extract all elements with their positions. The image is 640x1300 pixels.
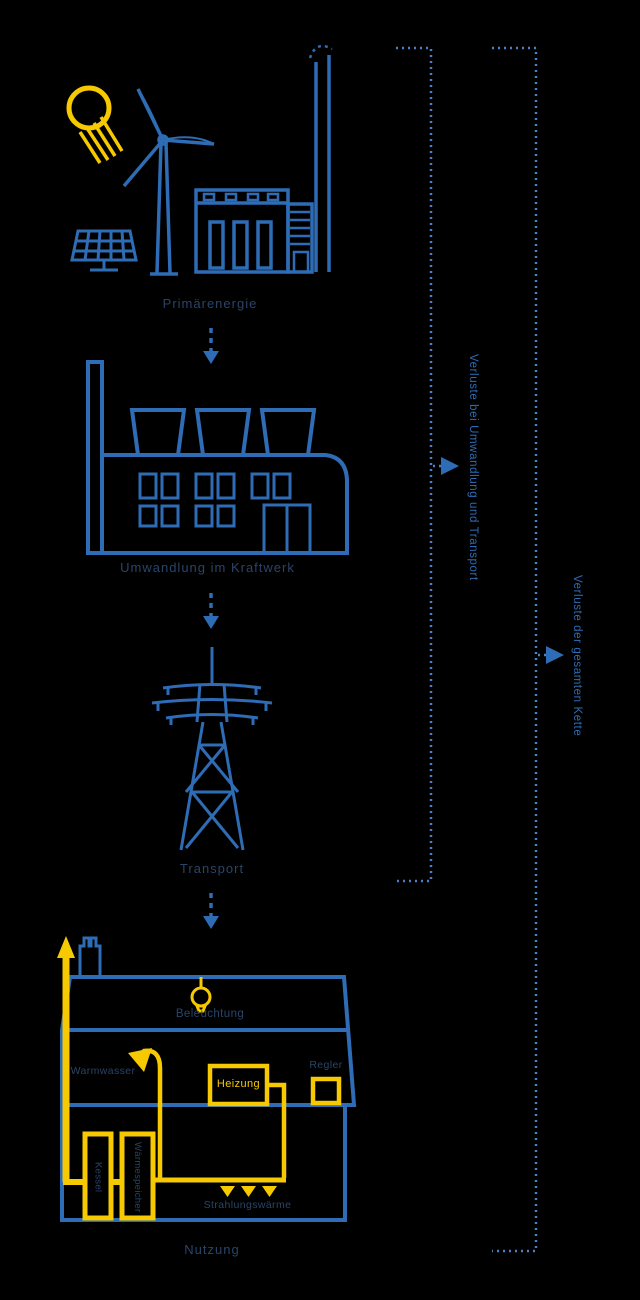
label-hot-water: Warmwasser [62, 1065, 144, 1077]
sun-icon [69, 88, 122, 163]
pylon-icon [152, 647, 272, 850]
flow-arrow-icon [203, 893, 219, 929]
radiant-heat-icon [220, 1186, 277, 1197]
energy-flow-diagram: Primärenergie Umwandlung im Kraftwerk Tr… [0, 0, 640, 1300]
label-controller: Regler [298, 1059, 354, 1071]
label-heating: Heizung [212, 1078, 265, 1090]
label-storage-tank: Wärmespeicher [129, 1137, 146, 1217]
diagram-artwork [0, 0, 640, 1300]
annotation-arrow-icon [441, 457, 564, 664]
wind-turbine-icon [124, 89, 214, 274]
bracket-icon [396, 48, 546, 1251]
label-radiant-heat: Strahlungswärme [180, 1199, 315, 1211]
caption-usage: Nutzung [112, 1242, 312, 1257]
annotation-conversion-transport-losses: Verluste bei Umwandlung und Transport [462, 348, 484, 586]
label-boiler: Kessel [90, 1140, 106, 1214]
flow-arrow-icon [203, 328, 219, 364]
factory-icon [88, 362, 347, 553]
control-box-icon [313, 1079, 339, 1103]
power-station-icon [196, 190, 312, 272]
solar-panel-icon [72, 231, 136, 270]
flow-arrow-icon [203, 593, 219, 629]
caption-conversion: Umwandlung im Kraftwerk [95, 560, 320, 575]
annotation-total-losses: Verluste der gesamten Kette [566, 558, 588, 753]
light-bulb-icon [192, 977, 210, 1011]
label-lighting: Beleuchtung [135, 1008, 285, 1020]
caption-primary-energy: Primärenergie [110, 296, 310, 311]
caption-transport: Transport [112, 861, 312, 876]
